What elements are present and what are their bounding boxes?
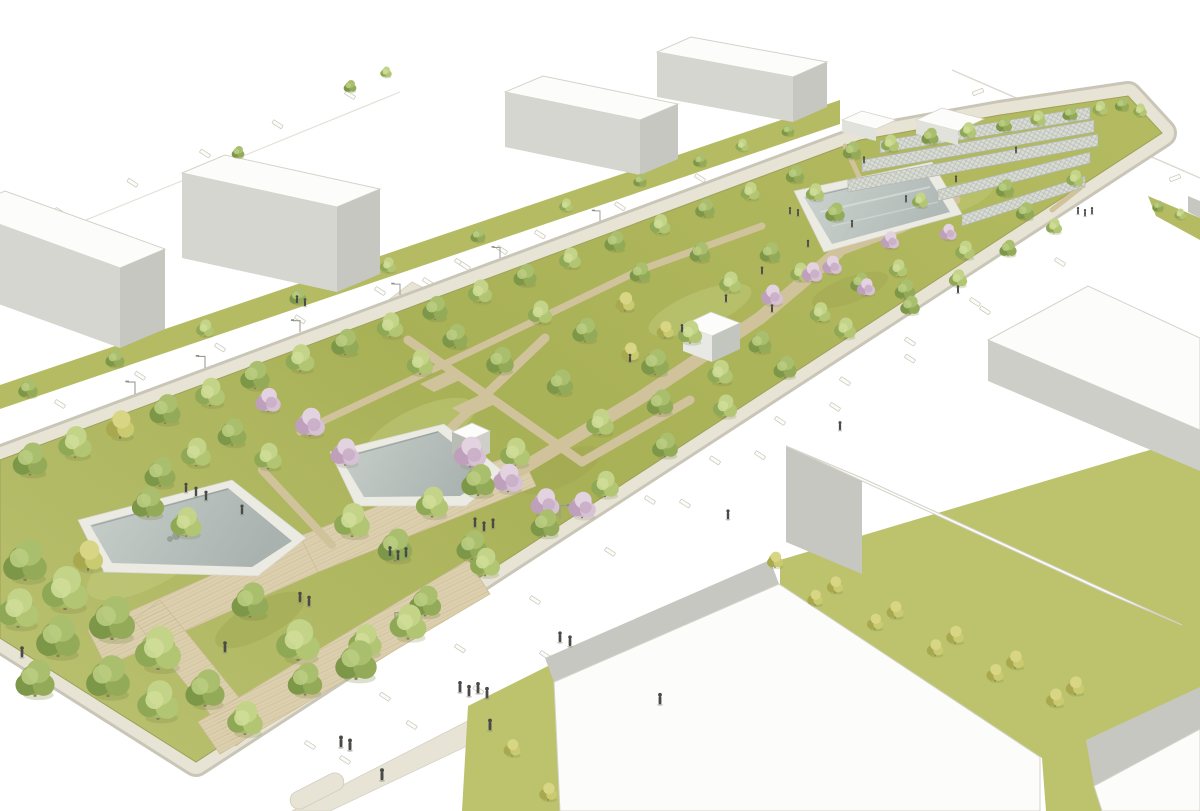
rendering-canvas: Aerial rendering of a linear park master…	[0, 0, 1200, 811]
masterplan-rendering: Aerial rendering of a linear park master…	[0, 0, 1200, 811]
